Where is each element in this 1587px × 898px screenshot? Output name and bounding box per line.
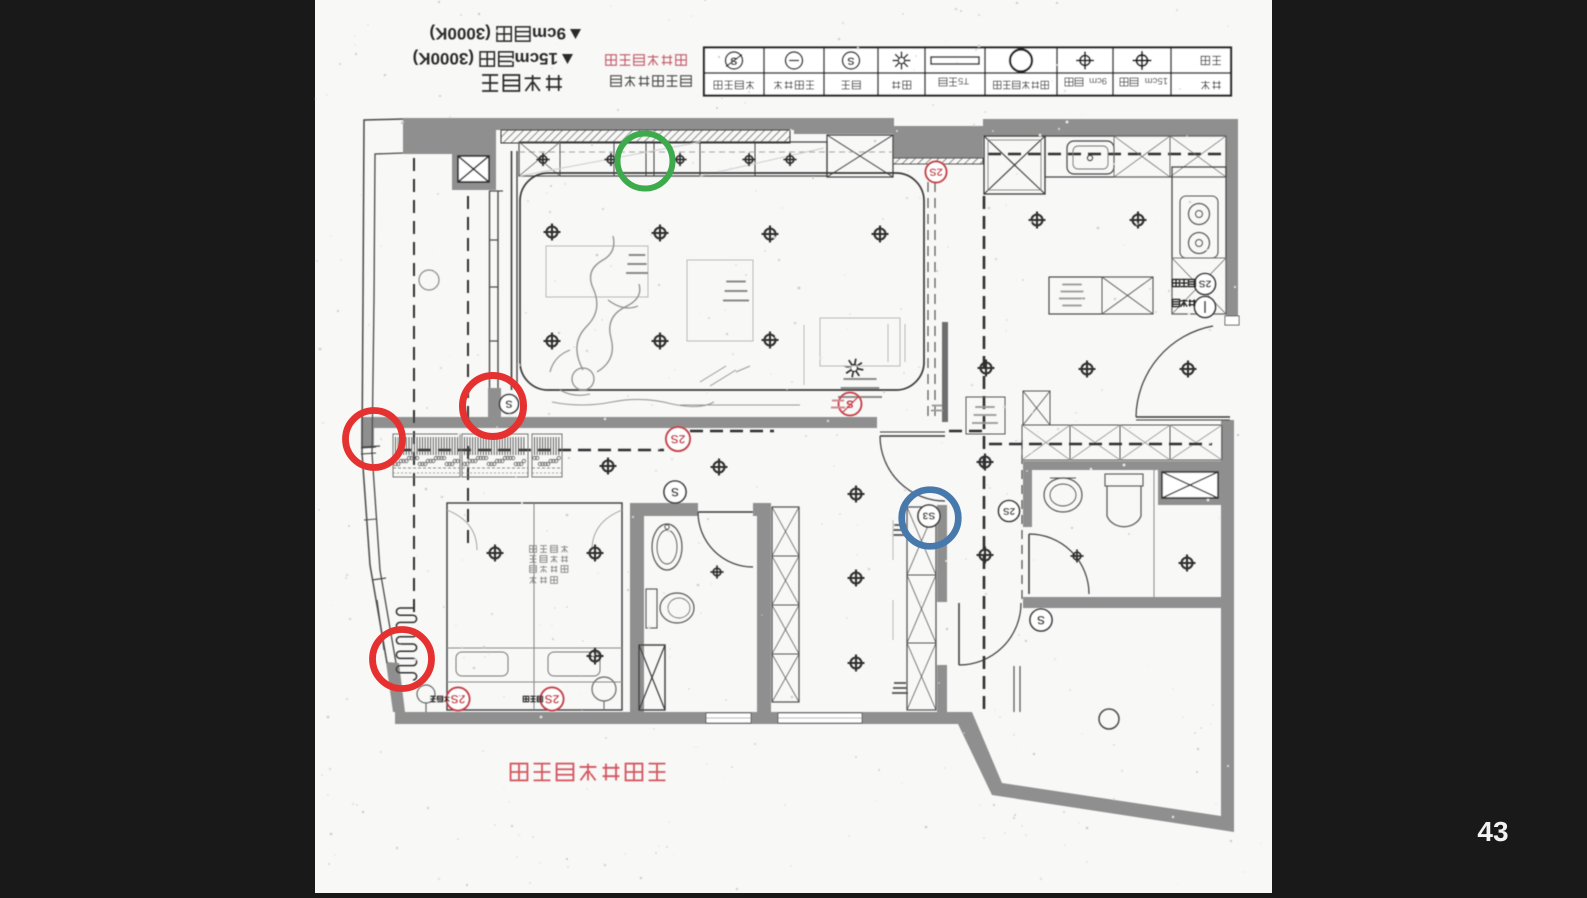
svg-text:9cm: 9cm bbox=[1089, 75, 1107, 86]
svg-text:S: S bbox=[505, 397, 512, 409]
svg-text:2S: 2S bbox=[671, 432, 686, 446]
svg-text:9cm: 9cm bbox=[532, 24, 566, 43]
svg-text:15cm: 15cm bbox=[1145, 75, 1168, 86]
svg-text:S: S bbox=[671, 485, 679, 499]
svg-text:2S: 2S bbox=[545, 692, 560, 706]
svg-text:43: 43 bbox=[1477, 816, 1508, 847]
svg-text:2S: 2S bbox=[1003, 505, 1016, 516]
svg-text:2S: 2S bbox=[929, 165, 942, 177]
svg-text:2S: 2S bbox=[451, 692, 466, 706]
svg-text:S: S bbox=[847, 55, 854, 67]
svg-text:S: S bbox=[1037, 613, 1045, 627]
svg-text:S3: S3 bbox=[922, 510, 935, 522]
svg-text:(3000K): (3000K) bbox=[413, 49, 474, 68]
svg-text:2S: 2S bbox=[1199, 278, 1212, 290]
svg-text:(3000K): (3000K) bbox=[429, 24, 490, 43]
svg-text:T5: T5 bbox=[958, 75, 969, 86]
svg-text:15cm: 15cm bbox=[515, 49, 558, 68]
